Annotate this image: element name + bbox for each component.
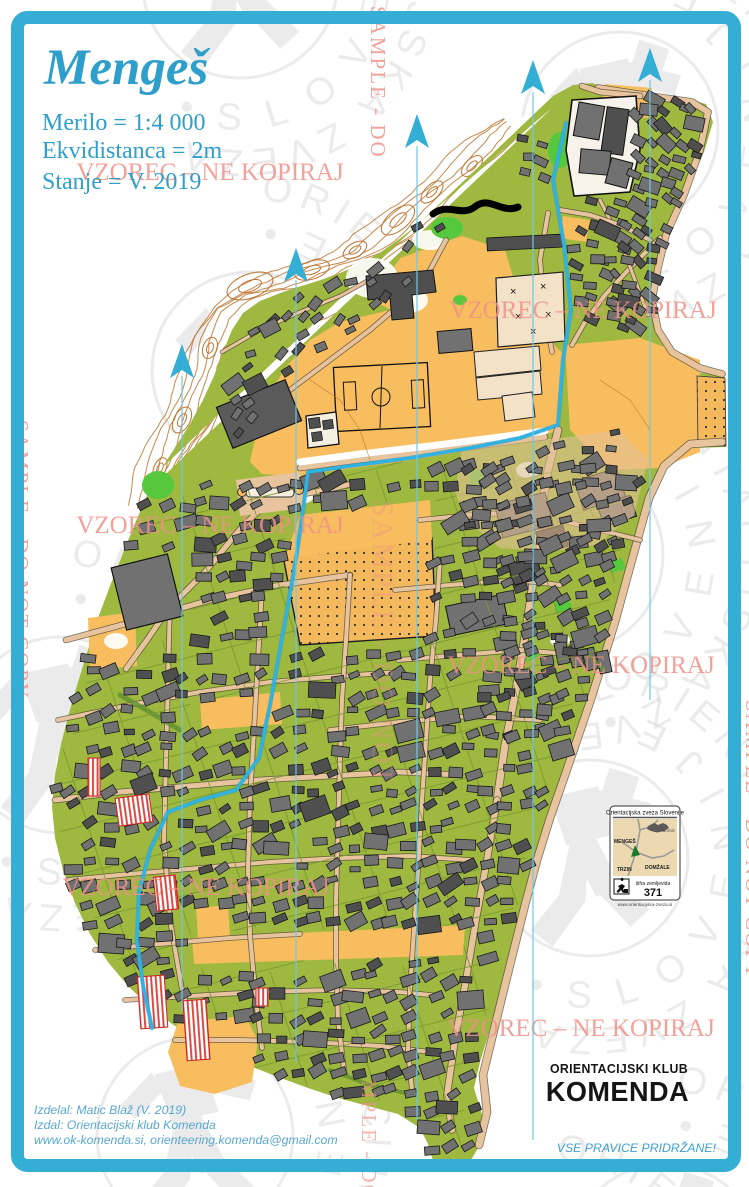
svg-text:www.ok-komenda.si, orienteerin: www.ok-komenda.si, orienteering.komenda@… (34, 1133, 338, 1147)
svg-text:Izdelal: Matic Blaž (V. 2019): Izdelal: Matic Blaž (V. 2019) (34, 1103, 186, 1117)
svg-text:www.orientacijska-zveza.si: www.orientacijska-zveza.si (618, 902, 673, 907)
svg-text:KOMENDA: KOMENDA (546, 1076, 689, 1107)
svg-text:SAMPLE - DO NOT COPY: SAMPLE - DO NOT COPY (744, 40, 749, 331)
svg-text:TRZIN: TRZIN (617, 867, 632, 873)
svg-text:SAMPLE - DO: SAMPLE - DO (366, 6, 390, 159)
svg-text:VZOREC – NE KOPIRAJ: VZOREC – NE KOPIRAJ (447, 652, 715, 679)
svg-text:DOMŽALE: DOMŽALE (645, 863, 670, 871)
svg-text:SAMPLE - DO NOT: SAMPLE - DO NOT (366, 500, 399, 786)
svg-text:Merilo = 1:4 000: Merilo = 1:4 000 (42, 110, 206, 136)
svg-text:VZOREC – NE KOPIRAJ: VZOREC – NE KOPIRAJ (447, 1015, 715, 1042)
svg-text:Ekvidistanca = 2m: Ekvidistanca = 2m (42, 138, 222, 164)
svg-text:VZOREC – NE KOPIRAJ: VZOREC – NE KOPIRAJ (76, 512, 344, 539)
svg-text:Orientacijska zveza Slovenije: Orientacijska zveza Slovenije (606, 811, 685, 817)
svg-text:Stanje = V. 2019: Stanje = V. 2019 (42, 169, 201, 195)
svg-text:Izdal: Orientacijski klub Kome: Izdal: Orientacijski klub Komenda (34, 1118, 216, 1132)
svg-text:Kamnik: Kamnik (660, 828, 675, 833)
svg-text:VZOREC – NE KOPIRAJ: VZOREC – NE KOPIRAJ (62, 874, 330, 901)
svg-text:MENGEŠ: MENGEŠ (614, 837, 636, 845)
svg-text:ORIENTACIJSKI KLUB: ORIENTACIJSKI KLUB (550, 1061, 688, 1077)
svg-text:SAMPLE - DO NOT COPY: SAMPLE - DO NOT COPY (741, 700, 749, 980)
svg-text:VSE PRAVICE PRIDRŽANE!: VSE PRAVICE PRIDRŽANE! (557, 1140, 717, 1155)
svg-text:371: 371 (644, 887, 662, 899)
svg-text:Mengeš: Mengeš (43, 40, 210, 96)
svg-text:×: × (540, 281, 546, 293)
svg-text:VZOREC – NE KOPIRAJ: VZOREC – NE KOPIRAJ (449, 297, 717, 324)
